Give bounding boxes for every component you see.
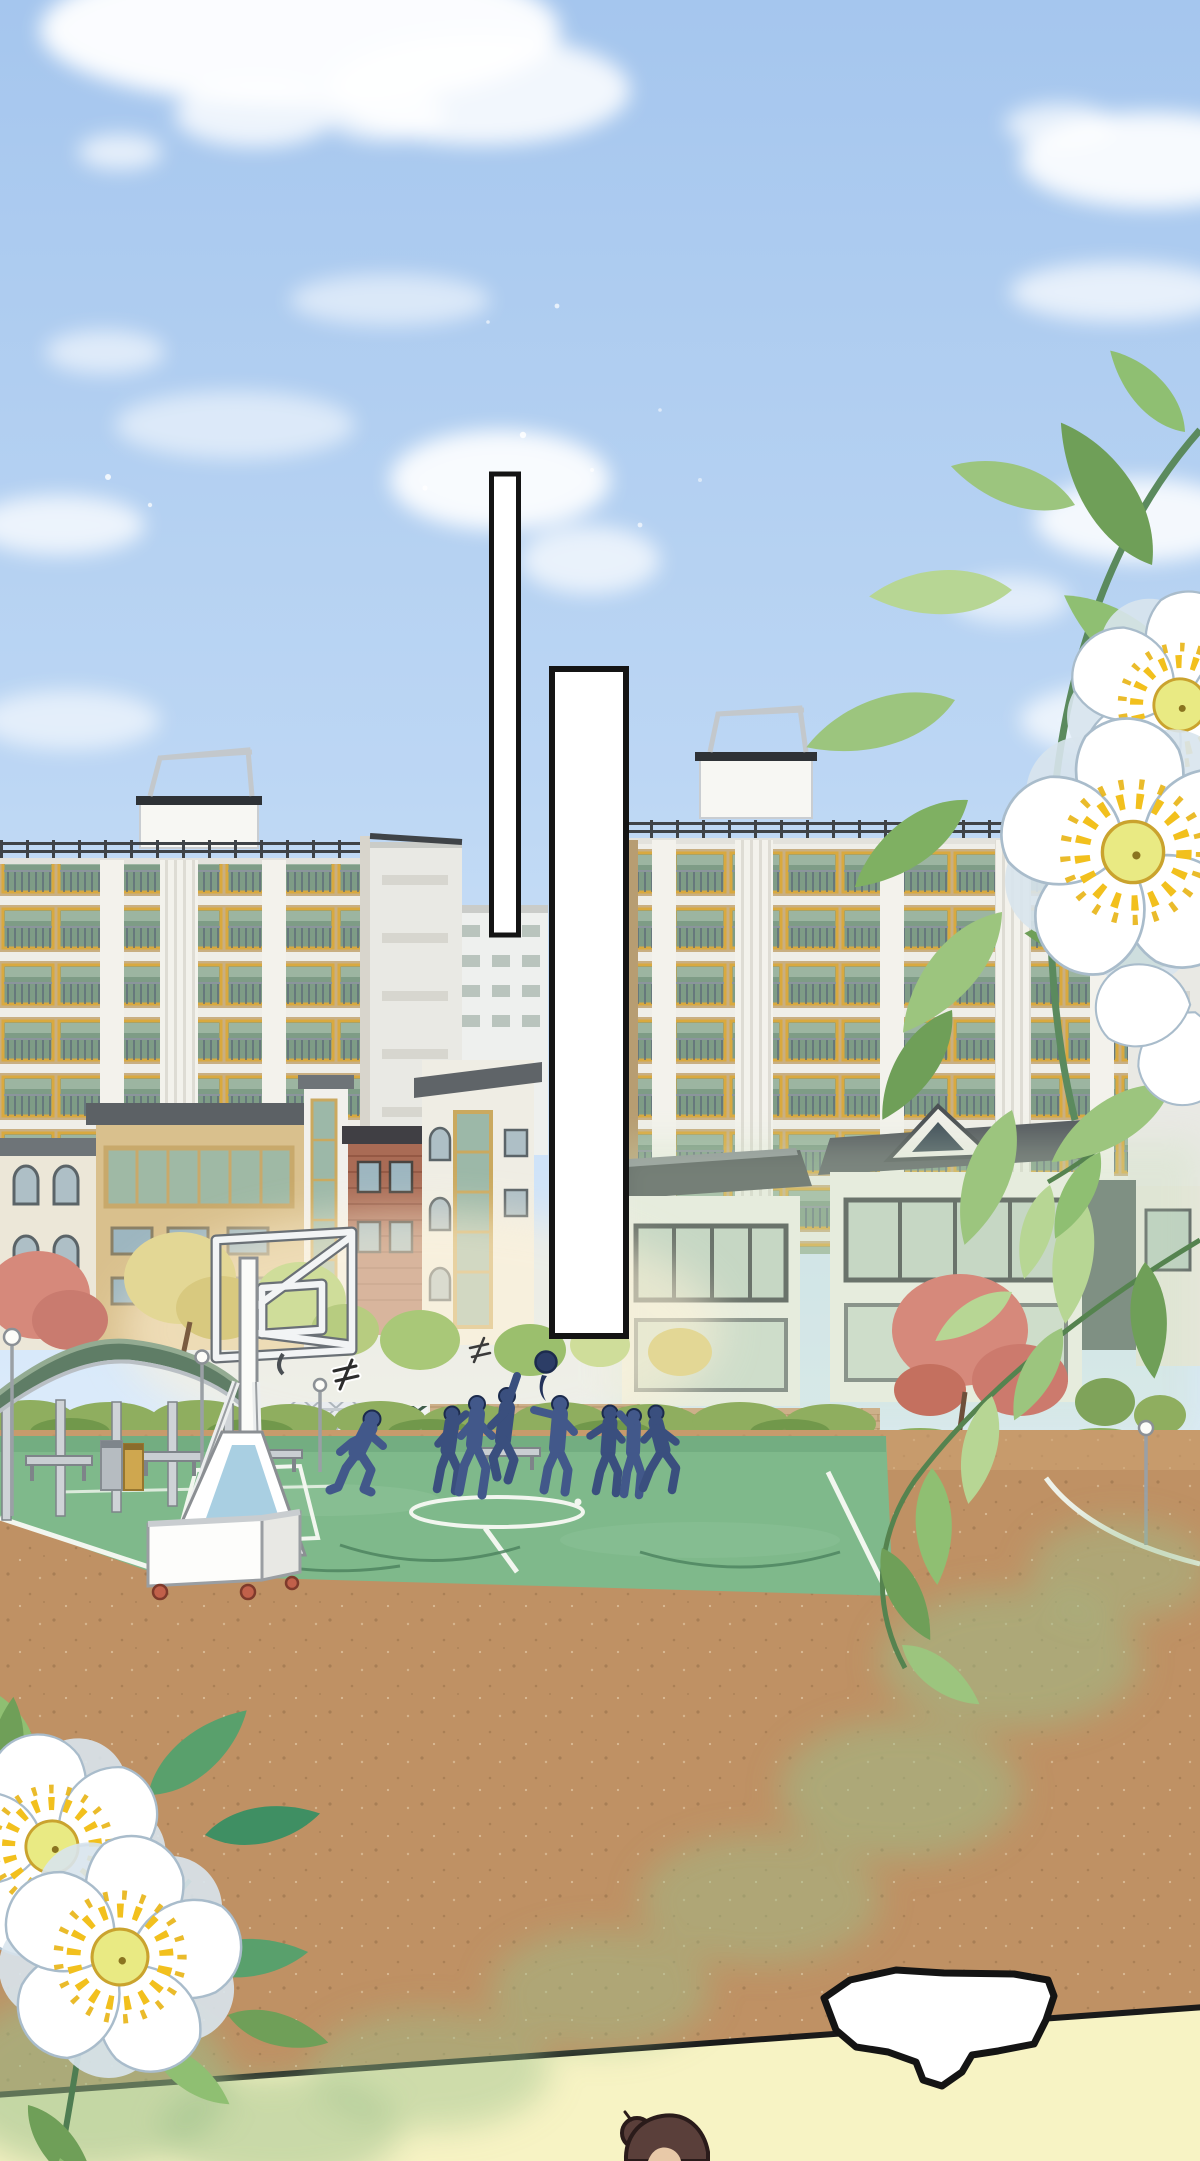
trash-bins bbox=[101, 1441, 143, 1490]
webtoon-panel bbox=[0, 0, 1200, 2161]
scene-illustration bbox=[0, 0, 1200, 2161]
vertical-speech-panel-1 bbox=[492, 474, 519, 935]
vertical-speech-panel-2 bbox=[552, 669, 626, 1336]
